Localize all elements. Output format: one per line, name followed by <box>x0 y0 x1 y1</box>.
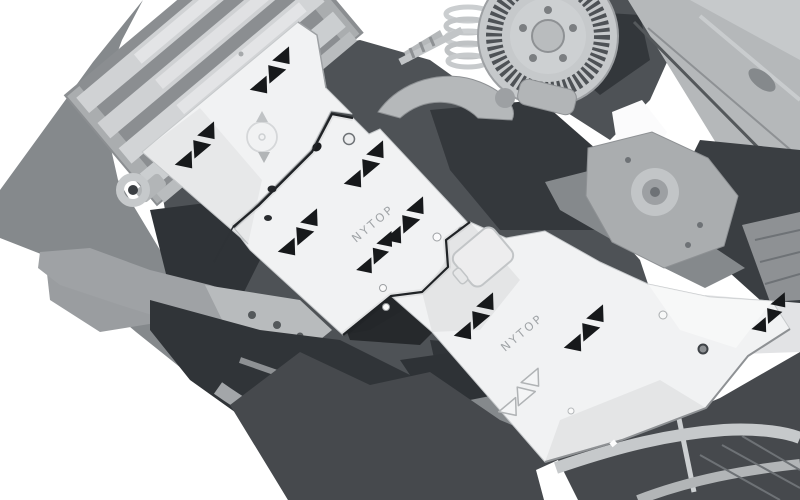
underbody-render-svg: NYTOP <box>0 0 800 500</box>
vehicle-underbody-render: NYTOP <box>0 0 800 500</box>
